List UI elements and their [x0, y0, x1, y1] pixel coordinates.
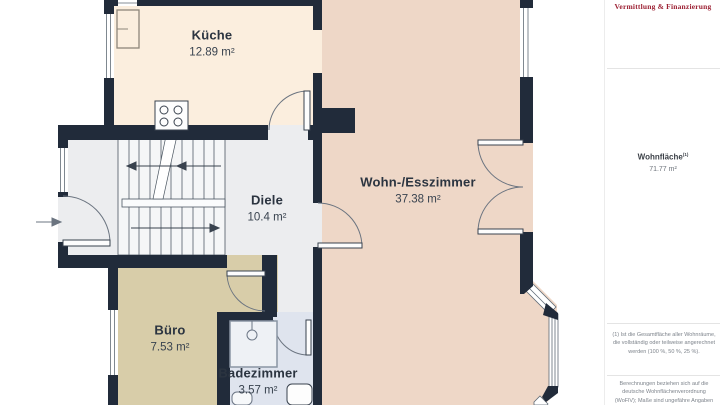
buero-left-window: [108, 310, 118, 375]
diele-left-window: [58, 148, 68, 192]
bay-window-vertical: [549, 314, 558, 387]
toilet: [287, 384, 312, 405]
stove: [155, 101, 188, 130]
stair-landing: [122, 199, 225, 207]
shower: [230, 321, 277, 367]
floorplan-page: Küche 12.89 m² Wohn-/Esszimmer 37.38 m² …: [0, 0, 720, 405]
wohnzimmer-right-window: [520, 8, 533, 77]
footnote-calculation: Berechnungen beziehen sich auf die deuts…: [607, 380, 720, 405]
sidebar: Vermittlung & Finanzierung Wohnfläche(1)…: [604, 0, 720, 405]
sidebar-divider: [607, 375, 720, 376]
footnote-area-definition: (1) Ist die Gesamtfläche aller Wohnräume…: [607, 331, 720, 356]
sidebar-divider: [607, 323, 720, 324]
living-area-value: 71.77 m²: [605, 166, 720, 173]
kueche-top-window: [118, 0, 137, 6]
brand-logo-text: Vermittlung & Finanzierung: [605, 2, 720, 11]
kueche-left-window: [104, 14, 114, 78]
living-area-footnote-marker: (1): [683, 152, 689, 157]
entrance-arrow-icon: [36, 218, 61, 226]
living-area-label: Wohnfläche(1): [605, 152, 720, 162]
staircase: [118, 131, 225, 255]
living-area-label-text: Wohnfläche: [638, 153, 683, 162]
living-area-summary: Wohnfläche(1) 71.77 m²: [605, 152, 720, 173]
washbasin: [232, 392, 252, 405]
kueche-floor: [104, 0, 322, 140]
sidebar-divider: [607, 68, 720, 69]
